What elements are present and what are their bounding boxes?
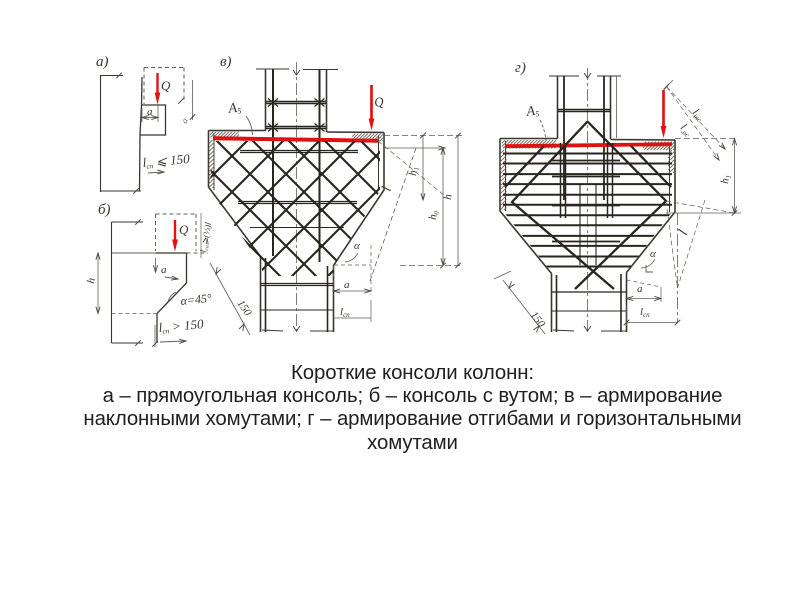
svg-text:lсп ⩽ 150: lсп ⩽ 150 — [142, 151, 191, 171]
svg-text:Q: Q — [373, 93, 385, 110]
svg-text:a: a — [161, 264, 167, 276]
svg-text:h: h — [442, 193, 454, 200]
svg-text:a: a — [637, 283, 643, 295]
svg-text:l: l — [676, 228, 691, 238]
svg-text:h1: h1 — [719, 174, 733, 184]
svg-text:a: a — [147, 106, 153, 118]
svg-text:l,ac: l,ac — [677, 122, 695, 140]
svg-text:A5: A5 — [524, 103, 540, 120]
svg-text:A5: A5 — [226, 100, 242, 117]
svg-text:a: a — [179, 116, 190, 125]
svg-text:h: h — [85, 277, 98, 285]
svg-text:lсп > 150: lсп > 150 — [158, 316, 205, 336]
svg-text:150: 150 — [528, 309, 548, 330]
svg-text:α: α — [650, 248, 656, 260]
svg-text:a: a — [344, 279, 350, 291]
svg-text:α: α — [354, 240, 360, 252]
svg-text:а): а) — [96, 54, 109, 70]
svg-text:б): б) — [98, 202, 111, 218]
svg-text:lсп: lсп — [640, 306, 650, 319]
svg-text:г): г) — [515, 60, 526, 76]
svg-text:Q: Q — [161, 78, 171, 93]
svg-text:150: 150 — [235, 298, 255, 319]
svg-text:в): в) — [220, 54, 232, 70]
svg-text:Q: Q — [179, 222, 189, 237]
svg-text:h0: h0 — [427, 210, 441, 221]
svg-text:lсп⩾(⅓)l: lсп⩾(⅓)l — [198, 221, 215, 254]
svg-text:lсп: lсп — [340, 306, 350, 319]
svg-text:α=45°: α=45° — [180, 291, 213, 308]
